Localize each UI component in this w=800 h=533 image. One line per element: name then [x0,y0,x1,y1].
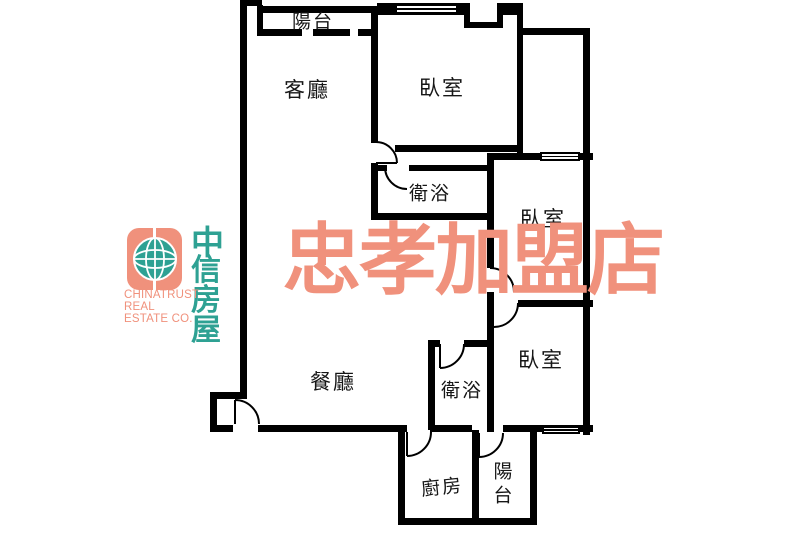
door-arc [376,142,397,163]
door-arc [407,432,431,456]
floor-plan-canvas: 中 信房屋 CHINATRUST REAL ESTATE CO. [0,0,800,533]
door-arc [385,167,407,189]
room-label-living: 客廳 [284,74,330,104]
room-label-kitchen: 廚房 [420,470,465,501]
door-arc [494,303,518,327]
room-label-bedroom-low: 臥室 [518,344,564,374]
room-label-dining: 餐廳 [310,366,356,396]
door-arc [440,344,464,368]
room-label-balcony-top: 陽台 [292,7,334,34]
room-label-bath-top: 衛浴 [409,179,451,206]
room-label-bedroom-top: 臥室 [419,72,465,102]
room-label-balcony-bottom: 陽台 [492,460,514,508]
franchise-watermark: 忠孝加盟店 [283,221,663,303]
room-label-bath-low: 衛浴 [441,376,483,403]
door-arc [235,400,259,424]
door-arc [479,433,503,457]
